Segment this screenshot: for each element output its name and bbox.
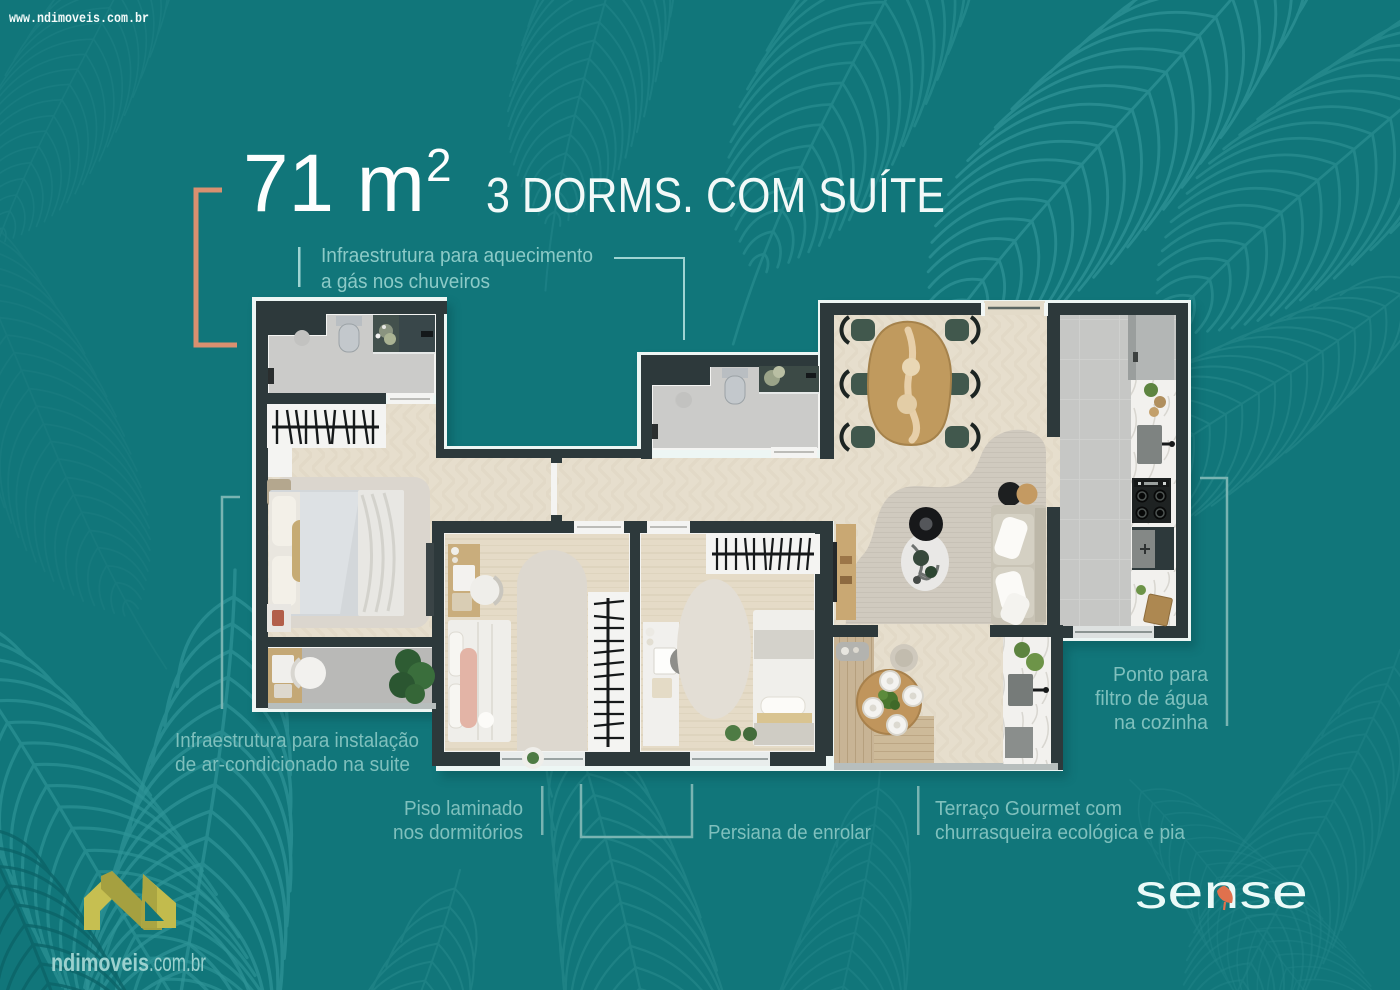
svg-text:71 m: 71 m — [243, 138, 425, 229]
svg-text:Piso laminado: Piso laminado — [404, 798, 523, 820]
svg-text:a gás nos chuveiros: a gás nos chuveiros — [321, 271, 490, 293]
svg-text:filtro de água: filtro de água — [1095, 688, 1209, 710]
svg-text:churrasqueira ecológica e pia: churrasqueira ecológica e pia — [935, 822, 1186, 844]
svg-text:Ponto para: Ponto para — [1113, 664, 1209, 686]
svg-text:na cozinha: na cozinha — [1114, 712, 1209, 734]
svg-text:www.ndimoveis.com.br: www.ndimoveis.com.br — [9, 11, 149, 27]
svg-text:Terraço Gourmet com: Terraço Gourmet com — [935, 798, 1122, 820]
svg-text:nos dormitórios: nos dormitórios — [393, 822, 523, 844]
svg-text:Persiana de enrolar: Persiana de enrolar — [708, 822, 871, 844]
svg-text:ndimoveis.com.br: ndimoveis.com.br — [51, 949, 206, 977]
svg-text:2: 2 — [426, 139, 452, 191]
svg-text:Infraestrutura para instalação: Infraestrutura para instalação — [175, 730, 419, 752]
svg-text:Infraestrutura para aqueciment: Infraestrutura para aquecimento — [321, 245, 593, 267]
svg-text:3 DORMS. COM SUÍTE: 3 DORMS. COM SUÍTE — [486, 169, 945, 223]
svg-text:de ar-condicionado na suite: de ar-condicionado na suite — [175, 754, 410, 776]
